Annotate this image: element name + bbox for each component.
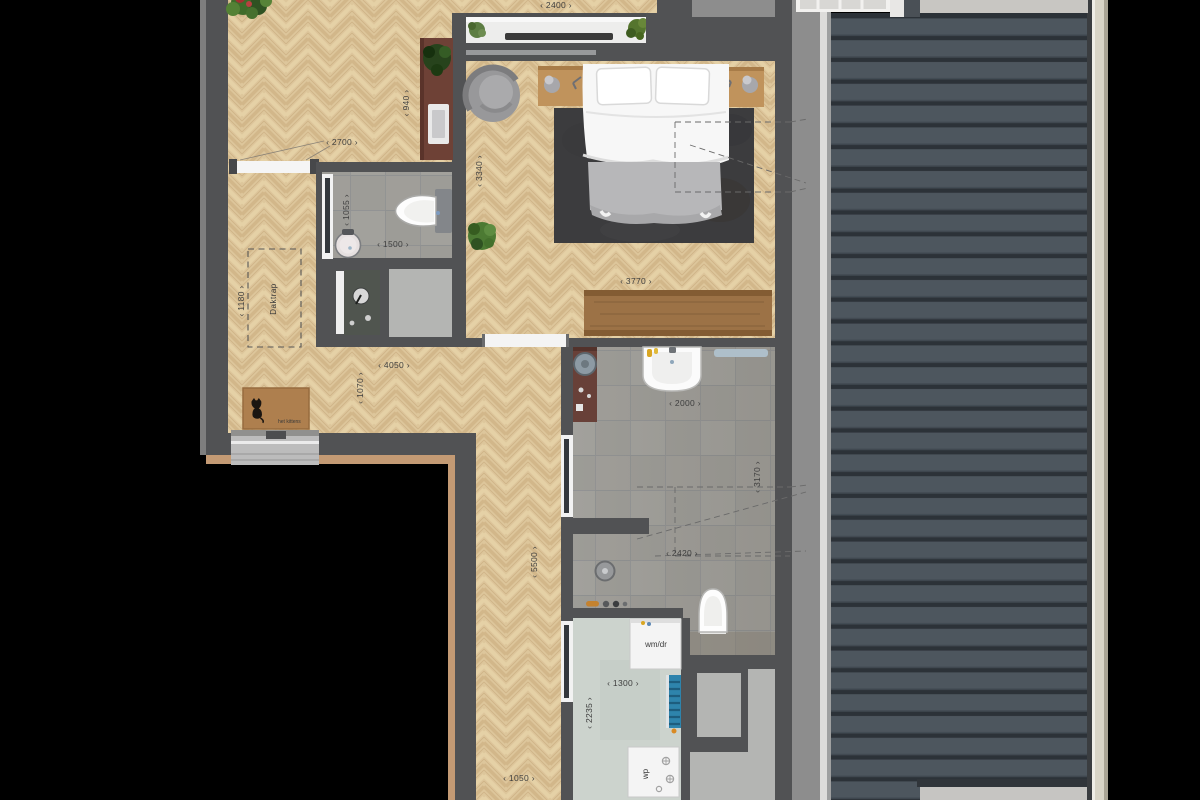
svg-text:‹ 3340 ›: ‹ 3340 › bbox=[474, 155, 484, 187]
svg-text:‹ 1070 ›: ‹ 1070 › bbox=[355, 372, 365, 404]
svg-text:‹ 1055 ›: ‹ 1055 › bbox=[341, 194, 351, 226]
svg-text:‹ 1050 ›: ‹ 1050 › bbox=[503, 773, 535, 783]
svg-text:het kittens: het kittens bbox=[278, 419, 301, 425]
svg-text:‹ 2400 ›: ‹ 2400 › bbox=[540, 0, 572, 10]
svg-text:‹ 5500 ›: ‹ 5500 › bbox=[529, 546, 539, 578]
svg-text:‹ 1300 ›: ‹ 1300 › bbox=[607, 678, 639, 688]
svg-text:‹ 1180 ›: ‹ 1180 › bbox=[236, 285, 246, 316]
svg-text:‹ 940 ›: ‹ 940 › bbox=[401, 90, 411, 117]
svg-text:‹ 2420 ›: ‹ 2420 › bbox=[666, 548, 698, 558]
svg-text:‹ 4050 ›: ‹ 4050 › bbox=[378, 360, 410, 370]
svg-text:‹ 2700 ›: ‹ 2700 › bbox=[326, 137, 358, 147]
svg-text:‹ 2235 ›: ‹ 2235 › bbox=[584, 697, 594, 729]
svg-text:‹ 2000 ›: ‹ 2000 › bbox=[669, 398, 701, 408]
svg-text:‹ 1500 ›: ‹ 1500 › bbox=[377, 239, 409, 249]
svg-text:‹ 3170 ›: ‹ 3170 › bbox=[752, 461, 762, 493]
svg-text:‹ 3770 ›: ‹ 3770 › bbox=[620, 276, 652, 286]
svg-text:wp: wp bbox=[641, 768, 650, 780]
svg-text:Daktrap: Daktrap bbox=[269, 283, 278, 315]
svg-text:wm/dr: wm/dr bbox=[644, 640, 667, 649]
